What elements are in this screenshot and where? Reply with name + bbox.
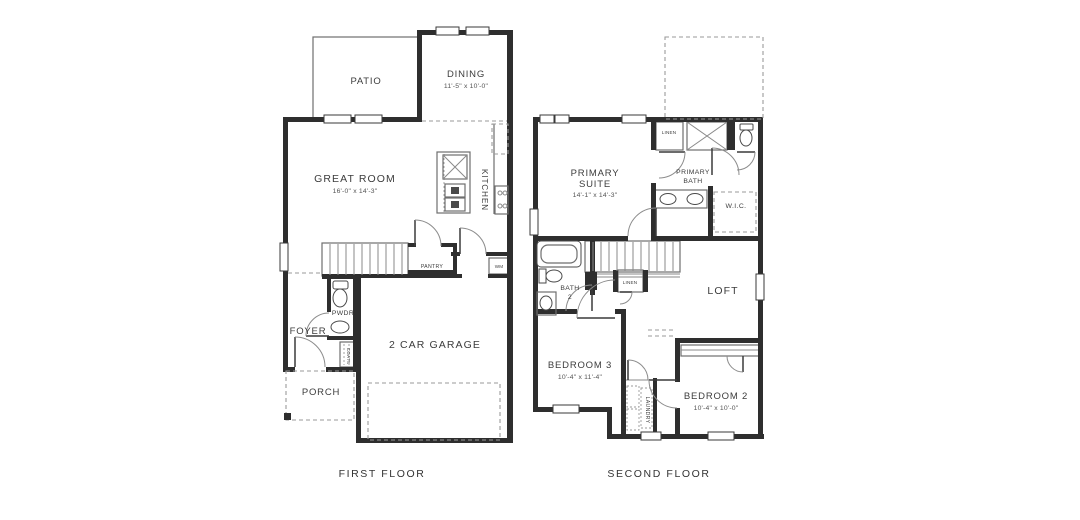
room-label-bath2-1: BATH (560, 285, 579, 292)
burner (503, 204, 507, 208)
sink-cross (443, 155, 467, 179)
room-label-bath2-2: 2 (568, 294, 572, 301)
room-label-laundry: LAUNDRY (644, 397, 650, 424)
vanity-sink (687, 194, 703, 205)
toilet-tank (333, 281, 348, 289)
room-dims-great-room: 16'-0" x 14'-3" (333, 188, 378, 195)
room-label-wic: W.I.C. (726, 203, 747, 210)
room-label-wm: WM (495, 264, 504, 269)
floor-plan-svg: PATIO DINING 11'-5" x 10'-0" GREAT ROOM … (0, 0, 1080, 515)
window (708, 432, 734, 440)
second-floor-plan: PRIMARY SUITE 14'-1" x 14'-3" LINEN PRIM… (530, 37, 764, 480)
vanity-sink (660, 194, 676, 205)
second-floor-labels: PRIMARY SUITE 14'-1" x 14'-3" LINEN PRIM… (548, 130, 748, 480)
cooktop (495, 186, 508, 214)
room-label-dining: DINING (447, 69, 485, 80)
toilet-bowl (740, 130, 752, 146)
room-label-patio: PATIO (350, 76, 381, 87)
room-label-primary-suite-1: PRIMARY (571, 168, 620, 179)
stair-rail (585, 274, 680, 277)
loft-break-lines (648, 330, 675, 336)
window (555, 115, 569, 123)
shower-cross (687, 122, 727, 150)
window (530, 209, 538, 235)
room-dims-bedroom3: 10'-4" x 11'-4" (558, 374, 603, 381)
toilet-room-door-swing (737, 152, 755, 170)
burner (498, 204, 502, 208)
garage-parking-area (368, 383, 500, 440)
stairs-outline (322, 243, 408, 276)
window (324, 115, 351, 123)
room-label-primary-bath-1: PRIMARY (676, 169, 710, 176)
room-label-pantry: PANTRY (421, 264, 444, 270)
room-label-kitchen: KITCHEN (480, 169, 489, 211)
sink (331, 321, 349, 333)
room-label-primary-bath-2: BATH (683, 178, 702, 185)
first-floor-windows (280, 27, 489, 271)
room-label-pwdr: PWDR (332, 310, 354, 317)
room-label-garage: 2 CAR GARAGE (389, 339, 481, 351)
room-label-linen-top: LINEN (662, 130, 677, 135)
kitchen-fixtures (437, 124, 508, 214)
window (756, 274, 764, 300)
second-floor-caption: SECOND FLOOR (607, 468, 710, 480)
toilet-bowl (546, 270, 562, 282)
linen-closet-outline (656, 122, 683, 150)
window (355, 115, 382, 123)
room-label-loft: LOFT (707, 285, 738, 297)
toilet-tank (740, 124, 753, 130)
oven-detail (451, 201, 459, 208)
room-label-porch: PORCH (302, 387, 340, 398)
room-dims-bedroom2: 10'-4" x 10'-0" (694, 405, 739, 412)
wic-door-swing (712, 148, 739, 175)
window (553, 405, 579, 413)
closet-door-swing (727, 356, 743, 372)
first-floor-plan: PATIO DINING 11'-5" x 10'-0" GREAT ROOM … (280, 27, 513, 480)
porch-post (284, 413, 291, 420)
powder-room-fixtures (331, 281, 349, 333)
open-to-below-outline (665, 37, 763, 119)
burner (503, 191, 507, 195)
room-label-coats: COATS (346, 348, 351, 364)
front-door-swing (295, 337, 325, 367)
window (540, 115, 554, 123)
garage-door-swing (460, 228, 486, 254)
washer-dashed (627, 386, 639, 407)
linen2-door-swing (620, 292, 632, 304)
burner (498, 191, 502, 195)
window (436, 27, 459, 35)
first-floor-walls (283, 30, 513, 443)
window (280, 243, 288, 271)
first-floor-caption: FIRST FLOOR (339, 468, 426, 480)
room-label-primary-suite-2: SUITE (579, 179, 611, 190)
toilet-bowl (333, 289, 347, 307)
room-dims-primary-suite: 14'-1" x 14'-3" (573, 192, 618, 199)
stairs2-treads (593, 242, 673, 271)
room-label-linen-mid: LINEN (623, 280, 638, 285)
room-label-bedroom2: BEDROOM 2 (684, 391, 748, 402)
window (466, 27, 489, 35)
toilet-tank (539, 269, 546, 283)
pantry-door-swing (415, 220, 441, 246)
window (641, 432, 661, 440)
stairs-treads (330, 244, 402, 275)
dryer-dashed (627, 409, 639, 430)
sink (540, 296, 552, 310)
room-dims-dining: 11'-5" x 10'-0" (444, 83, 489, 90)
room-label-foyer: FOYER (290, 326, 327, 337)
floor-plan-image: PATIO DINING 11'-5" x 10'-0" GREAT ROOM … (0, 0, 1080, 515)
room-label-great-room: GREAT ROOM (314, 173, 396, 185)
wic-shelving (714, 192, 756, 232)
laundry-door-swing (628, 360, 648, 380)
window (622, 115, 646, 123)
dishwasher-detail (451, 187, 459, 194)
room-label-bedroom3: BEDROOM 3 (548, 360, 612, 371)
